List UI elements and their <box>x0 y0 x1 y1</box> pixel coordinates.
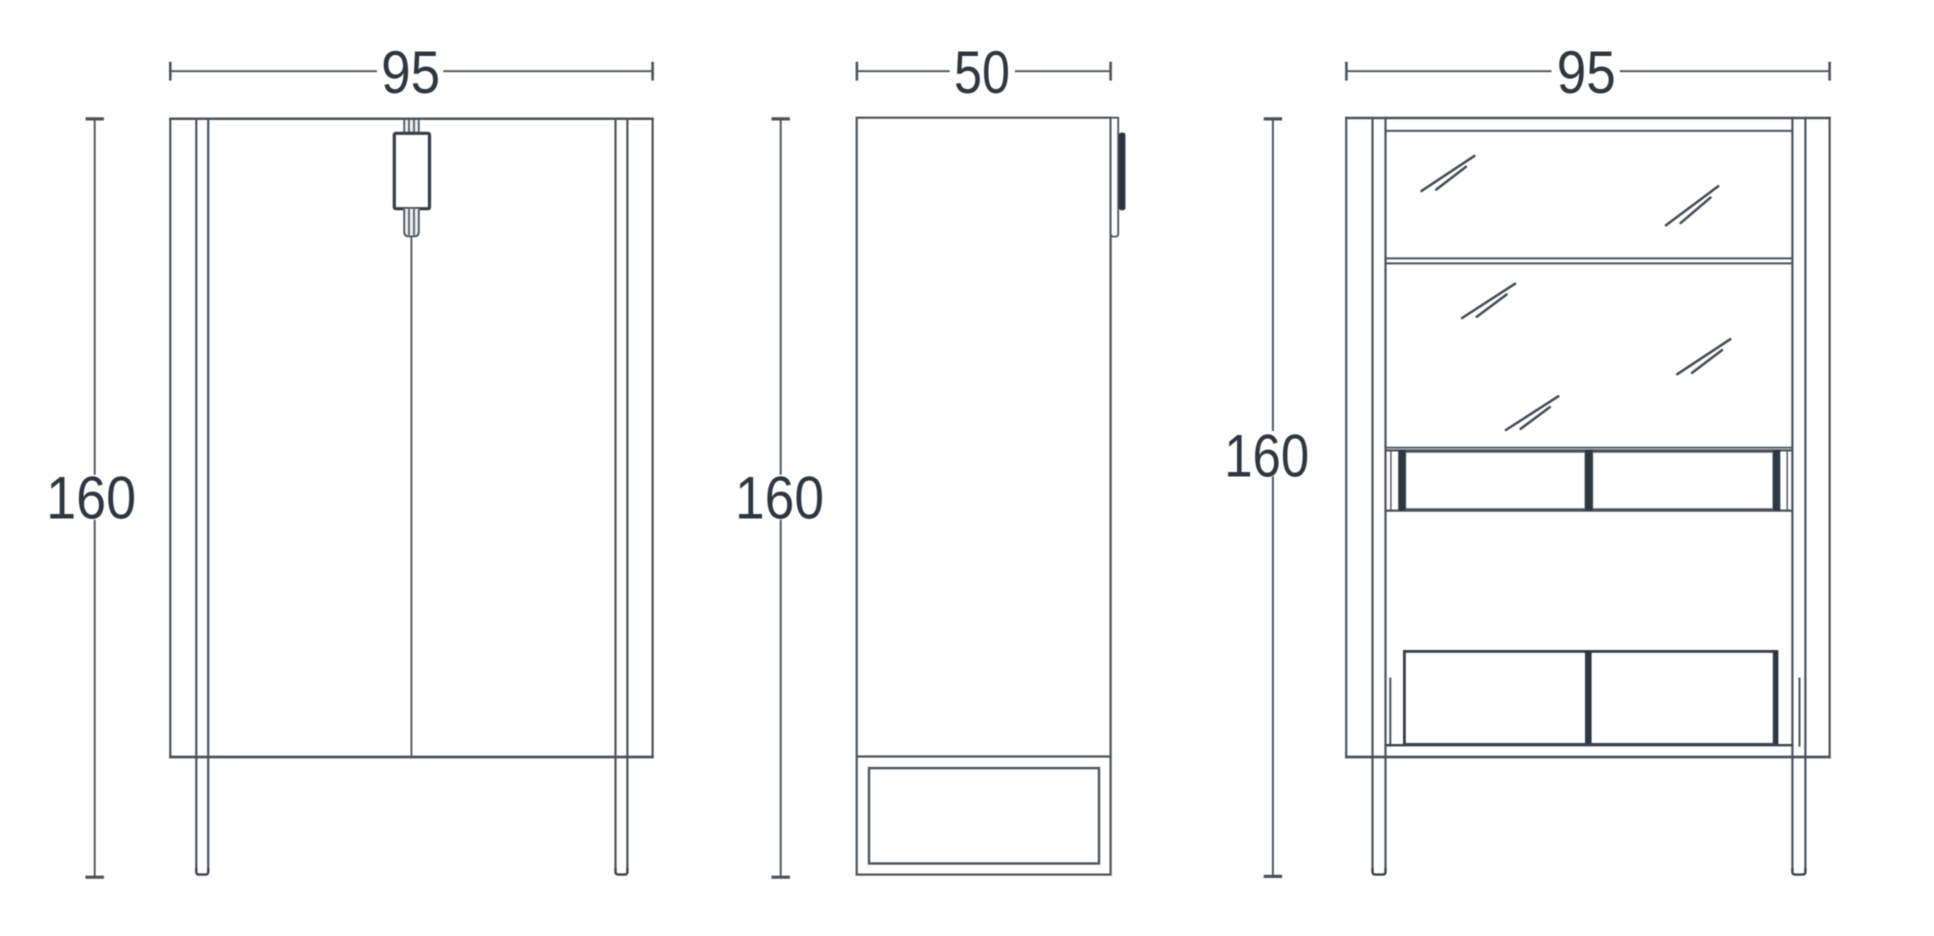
svg-text:50: 50 <box>954 38 1010 106</box>
svg-text:160: 160 <box>46 463 136 531</box>
svg-text:160: 160 <box>1224 421 1309 489</box>
svg-text:95: 95 <box>381 38 440 106</box>
svg-text:160: 160 <box>735 463 824 531</box>
svg-text:95: 95 <box>1557 38 1616 106</box>
